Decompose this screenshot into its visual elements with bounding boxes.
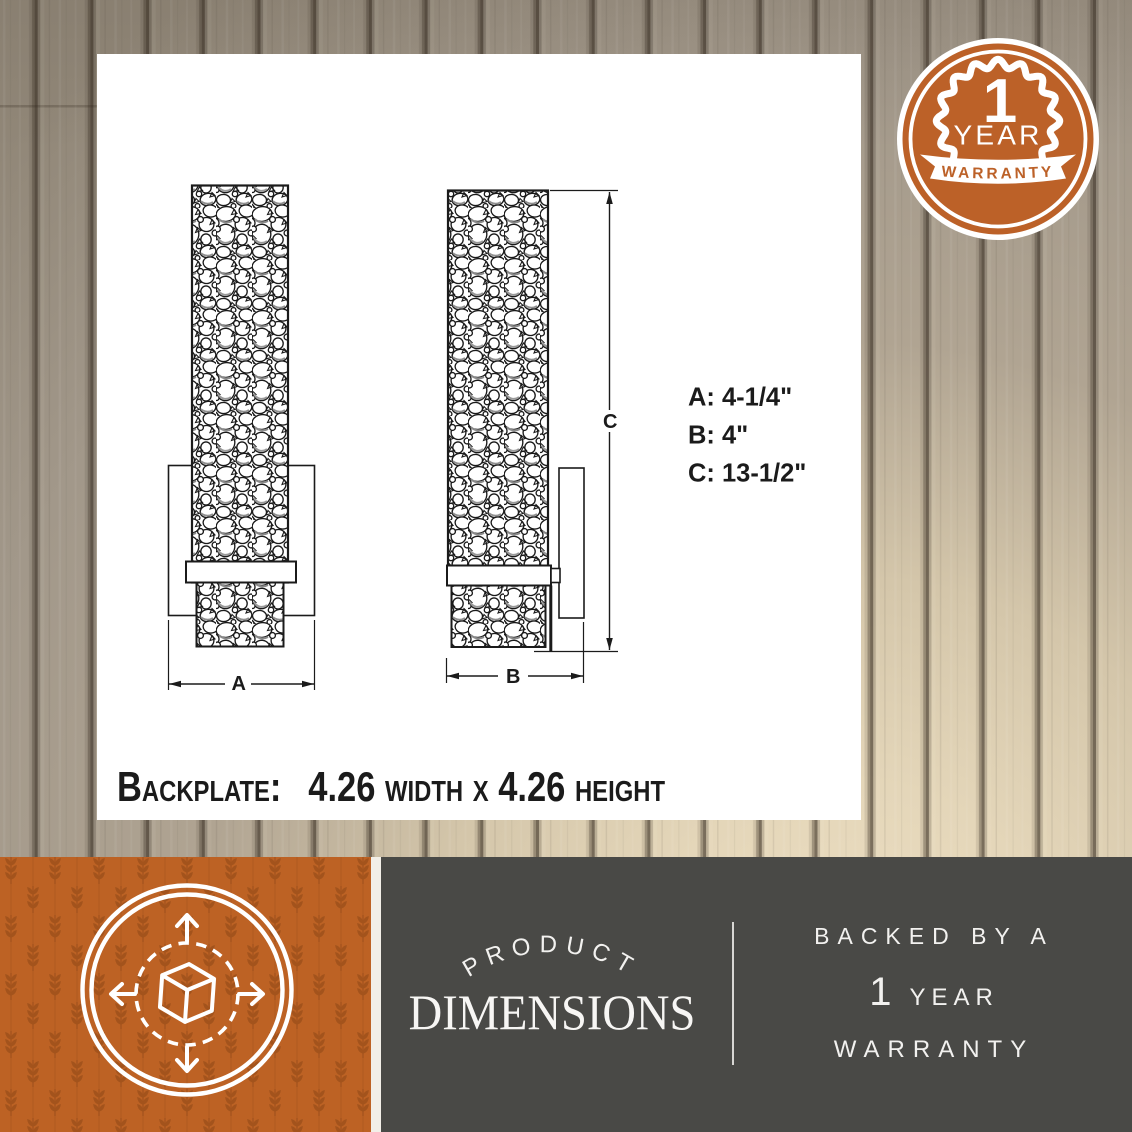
svg-text:C: 13-1/2": C: 13-1/2" (688, 460, 806, 488)
svg-text:BACKED BY A: BACKED BY A (814, 923, 1054, 949)
svg-text:1YEAR: 1YEAR (869, 970, 999, 1014)
svg-text:DIMENSIONS: DIMENSIONS (409, 986, 696, 1041)
svg-text:A: A (232, 673, 246, 695)
svg-text:C: C (603, 411, 617, 433)
svg-text:WARRANTY: WARRANTY (941, 163, 1055, 182)
svg-text:Backplate: 4.26 width x 4.26: Backplate: 4.26 width x 4.26 height (117, 763, 665, 810)
svg-text:WARRANTY: WARRANTY (834, 1036, 1034, 1063)
svg-text:A: 4-1/4": A: 4-1/4" (688, 384, 792, 412)
svg-text:PRODUCT: PRODUCT (458, 931, 644, 983)
svg-text:YEAR: YEAR (953, 120, 1042, 151)
svg-text:B: 4": B: 4" (688, 422, 748, 450)
svg-text:B: B (506, 666, 520, 688)
